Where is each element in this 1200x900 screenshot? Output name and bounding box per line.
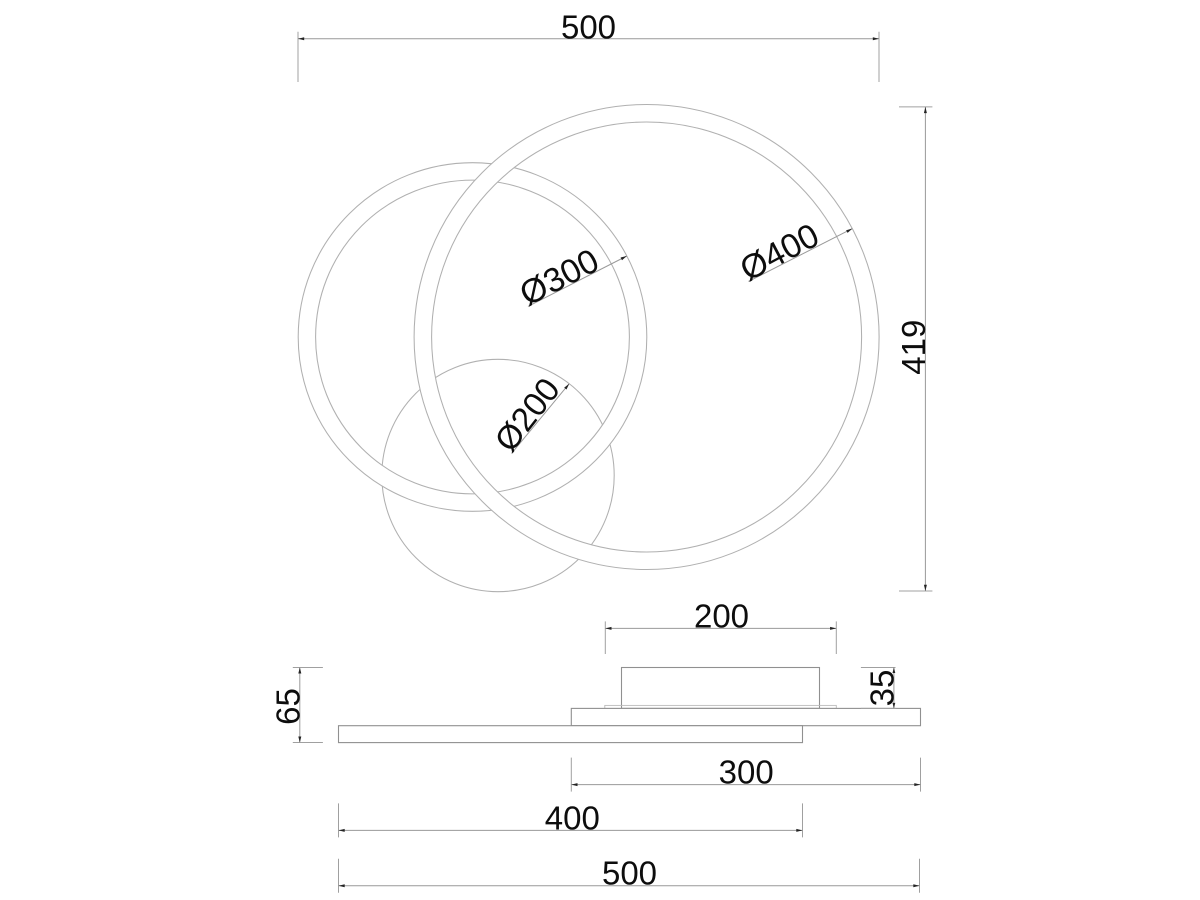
svg-text:419: 419 (895, 320, 932, 375)
svg-text:500: 500 (602, 855, 657, 892)
svg-text:35: 35 (863, 670, 900, 707)
svg-text:200: 200 (694, 597, 749, 634)
svg-text:Ø200: Ø200 (488, 372, 568, 459)
svg-text:Ø400: Ø400 (734, 216, 825, 288)
svg-text:500: 500 (561, 8, 616, 45)
svg-text:Ø300: Ø300 (514, 242, 605, 314)
svg-text:300: 300 (719, 754, 774, 791)
svg-text:65: 65 (269, 688, 306, 725)
svg-text:400: 400 (545, 799, 600, 836)
